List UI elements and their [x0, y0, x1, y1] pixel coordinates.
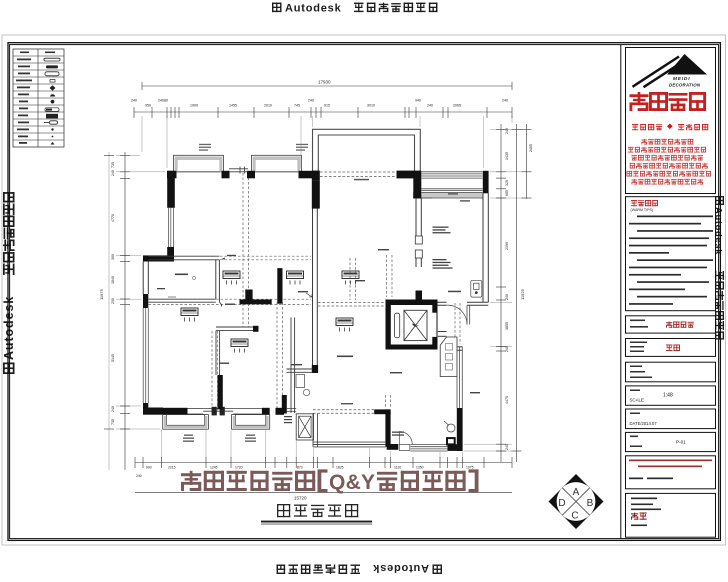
- svg-text:240: 240: [136, 474, 142, 478]
- svg-text:240: 240: [131, 99, 137, 103]
- svg-text:3010: 3010: [367, 104, 375, 108]
- svg-text:A: A: [573, 487, 580, 498]
- svg-text:2405: 2405: [529, 144, 533, 152]
- svg-text:240: 240: [111, 170, 115, 176]
- svg-text:1245: 1245: [210, 466, 218, 470]
- svg-text:1720: 1720: [235, 466, 243, 470]
- svg-text:685: 685: [505, 190, 509, 196]
- svg-text:735: 735: [111, 162, 115, 168]
- svg-text:15720: 15720: [294, 496, 307, 501]
- svg-text:(WARM TIPS): (WARM TIPS): [631, 208, 654, 212]
- svg-text:Autodesk: Autodesk: [372, 562, 429, 574]
- svg-text:3855: 3855: [505, 322, 509, 330]
- svg-text:P-01: P-01: [676, 440, 686, 445]
- svg-text:240: 240: [505, 128, 509, 134]
- svg-text:940: 940: [415, 99, 421, 103]
- svg-text:B: B: [587, 498, 594, 509]
- svg-text:DATE/2014.07: DATE/2014.07: [630, 421, 658, 426]
- svg-text:4770: 4770: [111, 214, 115, 222]
- svg-text:Autodesk: Autodesk: [2, 296, 16, 360]
- svg-text:11975: 11975: [99, 288, 104, 300]
- svg-text:2190: 2190: [505, 242, 509, 250]
- svg-text:1840: 1840: [111, 276, 115, 284]
- svg-text:1075: 1075: [466, 466, 474, 470]
- svg-text:240: 240: [308, 99, 314, 103]
- svg-text:1:48: 1:48: [663, 393, 673, 399]
- svg-text:240: 240: [505, 346, 509, 352]
- svg-text:D: D: [558, 498, 565, 509]
- svg-text:900: 900: [146, 466, 152, 470]
- svg-text:17930: 17930: [318, 80, 331, 85]
- svg-text:Q&Y: Q&Y: [329, 471, 375, 494]
- svg-text:745: 745: [294, 104, 300, 108]
- svg-text:SCALE: SCALE: [630, 398, 644, 403]
- svg-text:1435: 1435: [505, 152, 509, 160]
- svg-text:240: 240: [505, 444, 509, 450]
- svg-text:2215: 2215: [168, 466, 176, 470]
- svg-text:1900: 1900: [190, 104, 198, 108]
- svg-text:240: 240: [505, 294, 509, 300]
- svg-text:Autodesk: Autodesk: [713, 207, 724, 255]
- svg-text:1825: 1825: [336, 466, 344, 470]
- svg-text:Autodesk: Autodesk: [285, 2, 342, 14]
- svg-text:325: 325: [505, 180, 509, 186]
- svg-text:5145: 5145: [111, 354, 115, 362]
- svg-text:240: 240: [427, 104, 433, 108]
- svg-text:4470: 4470: [505, 396, 509, 404]
- svg-text:MEIDI: MEIDI: [673, 76, 690, 82]
- svg-text:1120: 1120: [394, 466, 401, 470]
- svg-text:1350: 1350: [416, 466, 424, 470]
- svg-text:C: C: [571, 511, 578, 522]
- svg-text:240: 240: [111, 406, 115, 412]
- svg-text:300: 300: [111, 254, 115, 260]
- svg-text:2065: 2065: [453, 104, 461, 108]
- svg-text:2010: 2010: [264, 104, 272, 108]
- svg-text:950: 950: [145, 104, 151, 108]
- svg-text:870: 870: [297, 466, 303, 470]
- svg-text:DECORATION: DECORATION: [669, 82, 701, 87]
- svg-text:230: 230: [111, 298, 115, 304]
- svg-text:24080: 24080: [158, 99, 168, 103]
- svg-text:11925: 11925: [520, 288, 525, 300]
- svg-text:915: 915: [324, 104, 330, 108]
- svg-text:735: 735: [111, 419, 115, 425]
- svg-text:1455: 1455: [229, 104, 237, 108]
- svg-text:240: 240: [502, 99, 508, 103]
